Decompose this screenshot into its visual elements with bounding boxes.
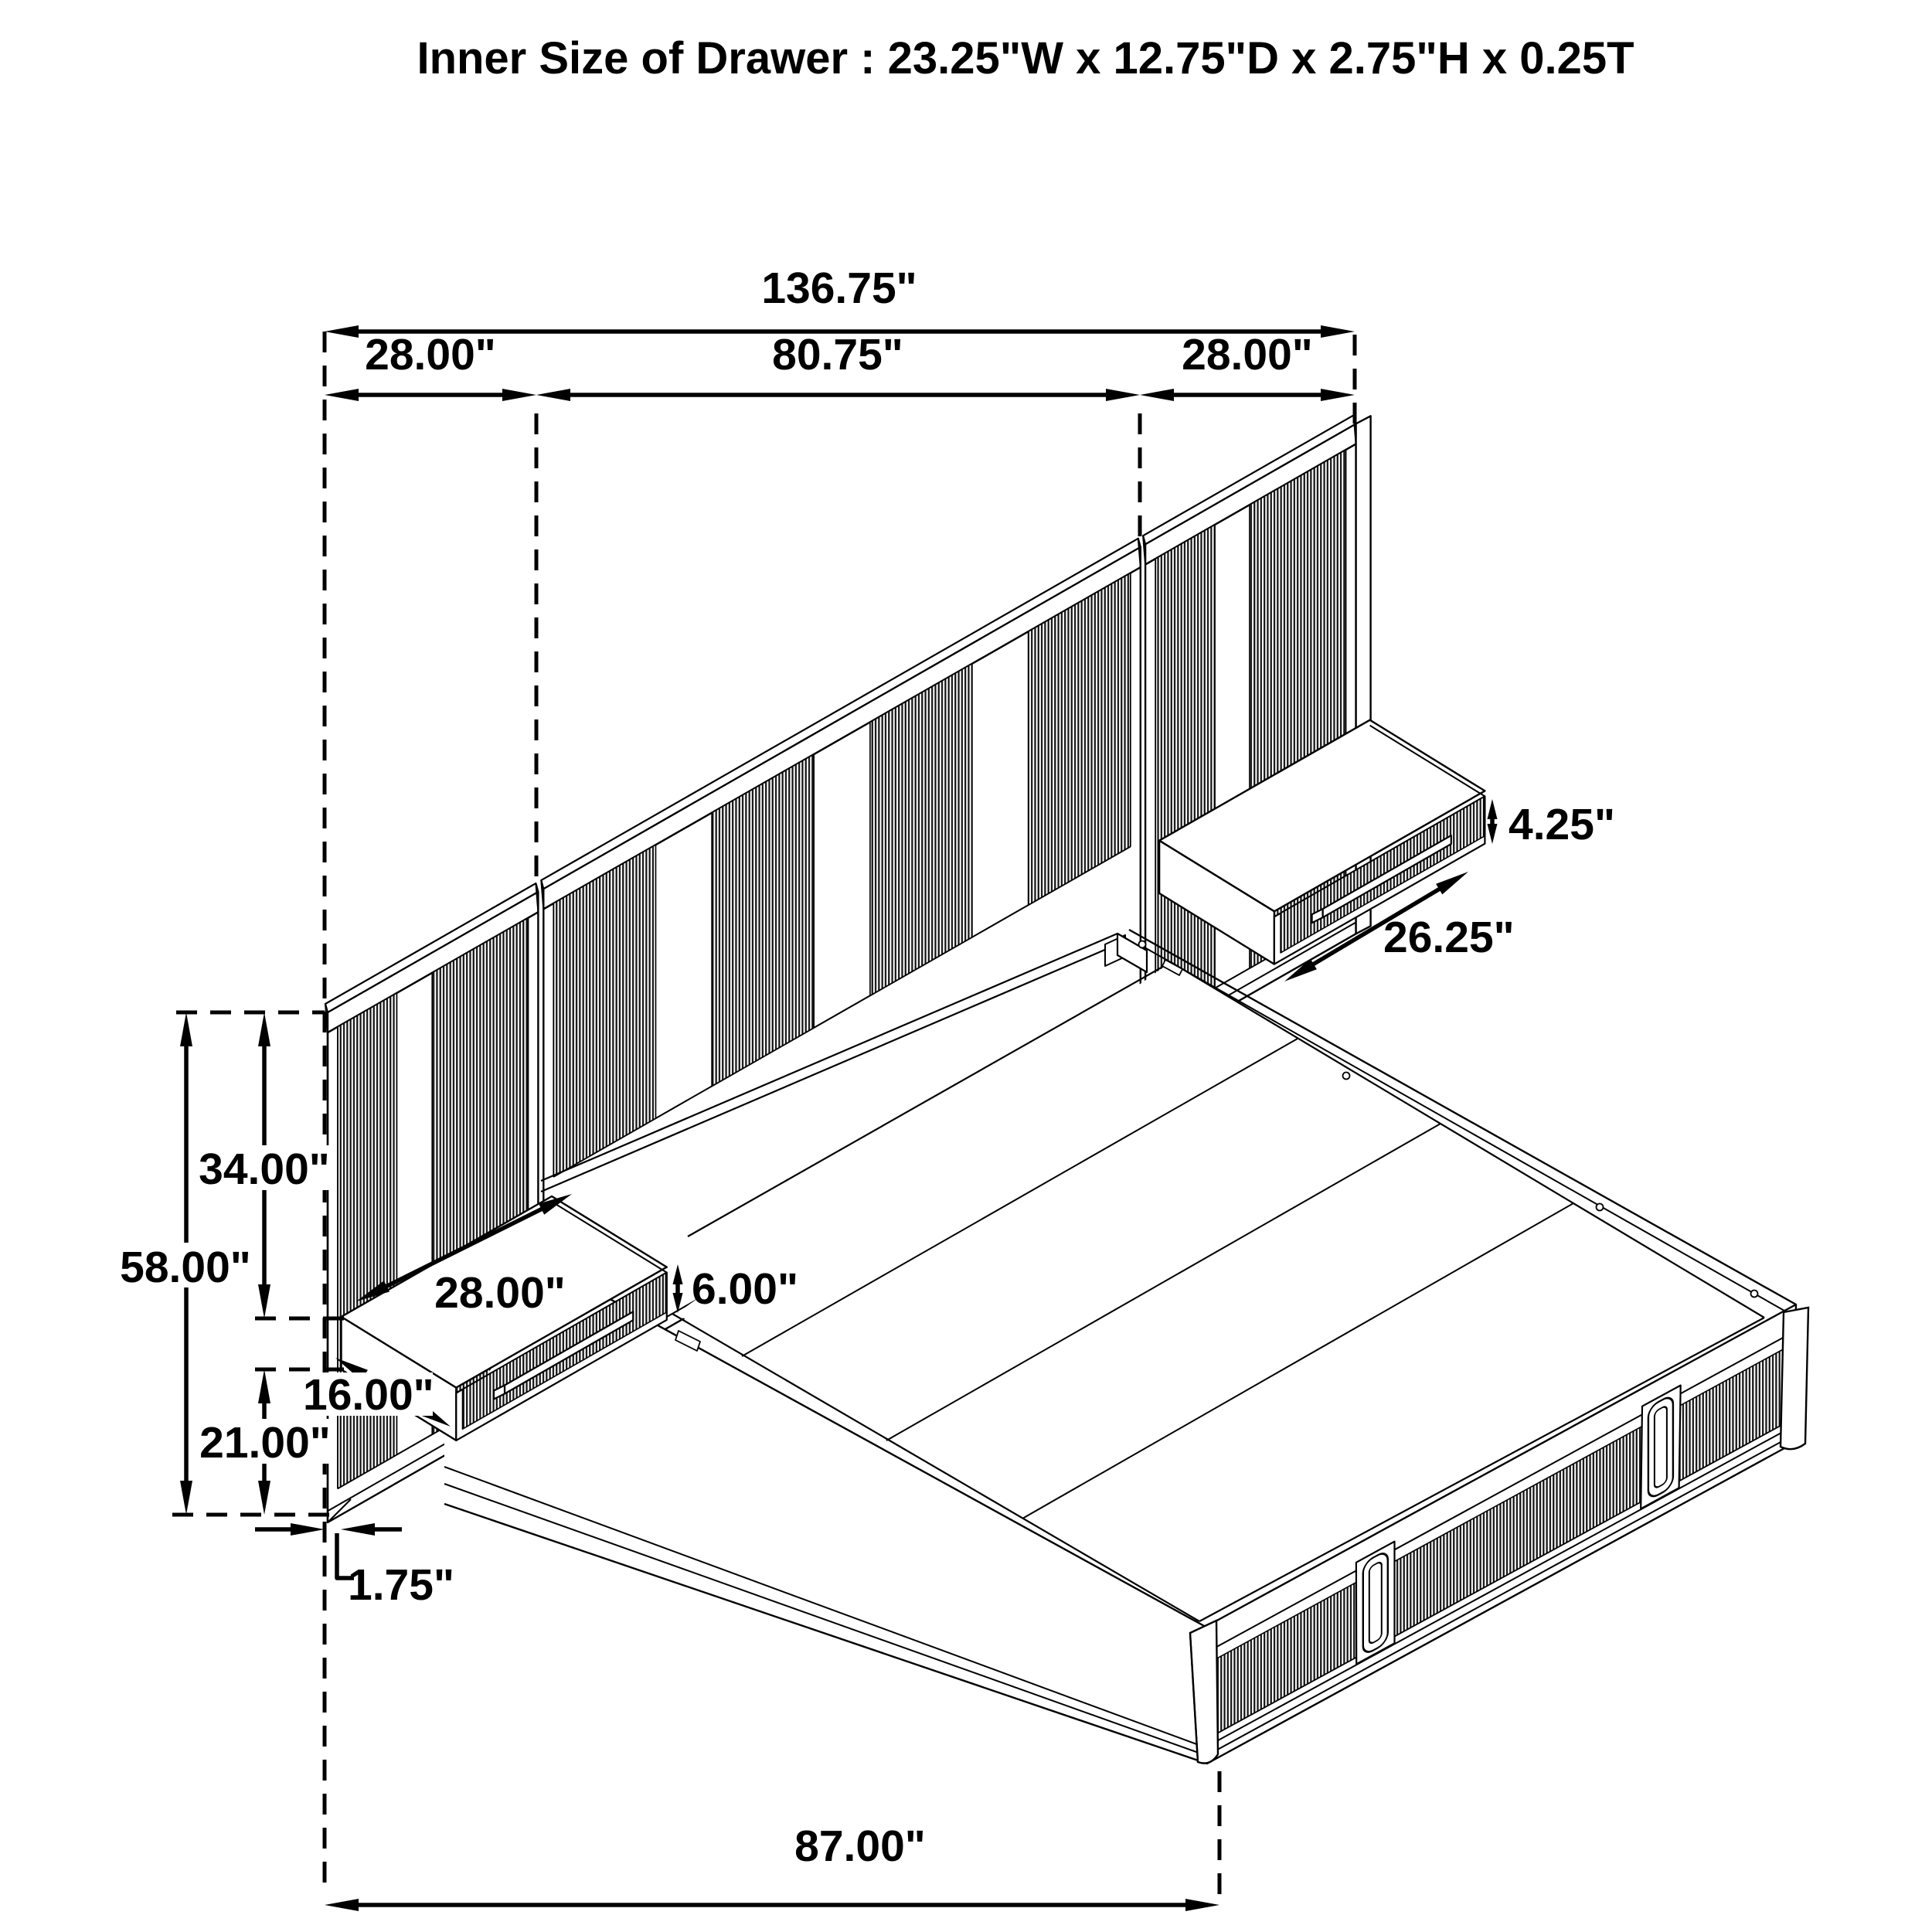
svg-text:Inner Size of Drawer : 23.25"W: Inner Size of Drawer : 23.25"W x 12.75"D… [417,33,1634,83]
svg-text:6.00": 6.00" [692,1264,798,1314]
svg-text:80.75": 80.75" [772,330,903,379]
svg-text:136.75": 136.75" [761,264,917,313]
svg-text:26.25": 26.25" [1383,913,1515,962]
svg-text:1.75": 1.75" [348,1560,454,1610]
svg-text:34.00": 34.00" [199,1145,330,1194]
svg-text:4.25": 4.25" [1509,800,1615,849]
svg-text:58.00": 58.00" [120,1243,251,1292]
svg-text:87.00": 87.00" [794,1821,926,1871]
svg-text:28.00": 28.00" [1182,330,1313,379]
svg-text:28.00": 28.00" [365,330,496,379]
svg-text:21.00": 21.00" [199,1418,331,1468]
svg-text:28.00": 28.00" [434,1268,566,1318]
svg-text:16.00": 16.00" [303,1370,434,1420]
